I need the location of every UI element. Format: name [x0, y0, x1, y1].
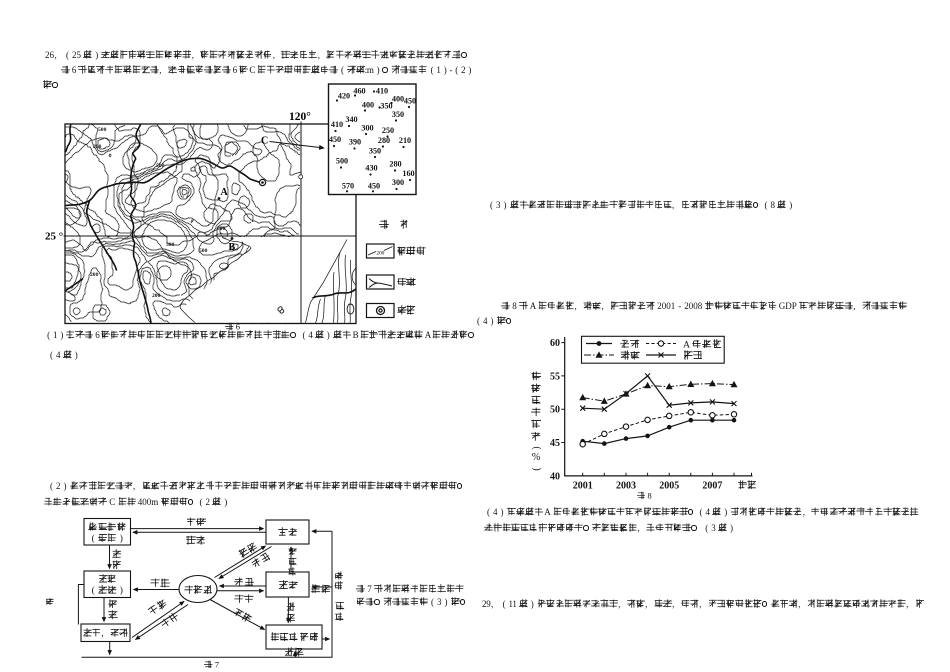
svg-text:500: 500	[336, 157, 348, 166]
svg-text:450: 450	[329, 135, 341, 144]
svg-text:C: C	[261, 136, 268, 147]
svg-text:2001: 2001	[573, 480, 593, 491]
svg-text:A: A	[221, 187, 229, 198]
svg-text:2005: 2005	[659, 480, 679, 491]
svg-text:200: 200	[93, 144, 102, 150]
svg-text:210: 210	[399, 136, 411, 145]
svg-text:200: 200	[377, 251, 385, 257]
svg-text:450: 450	[368, 182, 380, 191]
svg-text:200: 200	[152, 293, 161, 299]
svg-text:420: 420	[338, 92, 350, 101]
svg-text:250: 250	[382, 126, 394, 135]
svg-text:300: 300	[392, 178, 404, 187]
svg-text:430: 430	[365, 164, 377, 173]
svg-text:350: 350	[380, 102, 392, 111]
svg-text:500: 500	[98, 127, 107, 133]
svg-text:200: 200	[90, 272, 99, 278]
svg-text:570: 570	[342, 182, 354, 191]
svg-text:2003: 2003	[616, 480, 636, 491]
svg-text:500: 500	[199, 248, 208, 254]
svg-text:450: 450	[404, 97, 416, 106]
svg-text:400: 400	[392, 95, 404, 104]
svg-text:300: 300	[361, 124, 373, 133]
svg-text:2007: 2007	[702, 480, 722, 491]
svg-text:120°: 120°	[289, 111, 311, 123]
svg-text:280: 280	[389, 160, 401, 169]
svg-text:60: 60	[550, 338, 560, 349]
svg-text:400: 400	[362, 101, 374, 110]
svg-text:55: 55	[550, 371, 560, 382]
svg-text:460: 460	[353, 87, 365, 96]
svg-text:25 °: 25 °	[45, 231, 63, 243]
svg-text:350: 350	[392, 110, 404, 119]
svg-text:340: 340	[345, 115, 357, 124]
svg-text:500: 500	[156, 163, 165, 169]
svg-text:45: 45	[550, 438, 560, 449]
svg-text:40: 40	[550, 471, 560, 482]
svg-text:410: 410	[376, 87, 388, 96]
svg-text:500: 500	[166, 242, 175, 248]
svg-text:B: B	[229, 242, 236, 253]
svg-text:500: 500	[217, 226, 226, 232]
svg-text:280: 280	[378, 136, 390, 145]
svg-text:350: 350	[369, 147, 381, 156]
svg-text:50: 50	[550, 405, 560, 416]
svg-text:390: 390	[349, 138, 361, 147]
svg-text:410: 410	[331, 120, 343, 129]
svg-text:160: 160	[402, 169, 414, 178]
